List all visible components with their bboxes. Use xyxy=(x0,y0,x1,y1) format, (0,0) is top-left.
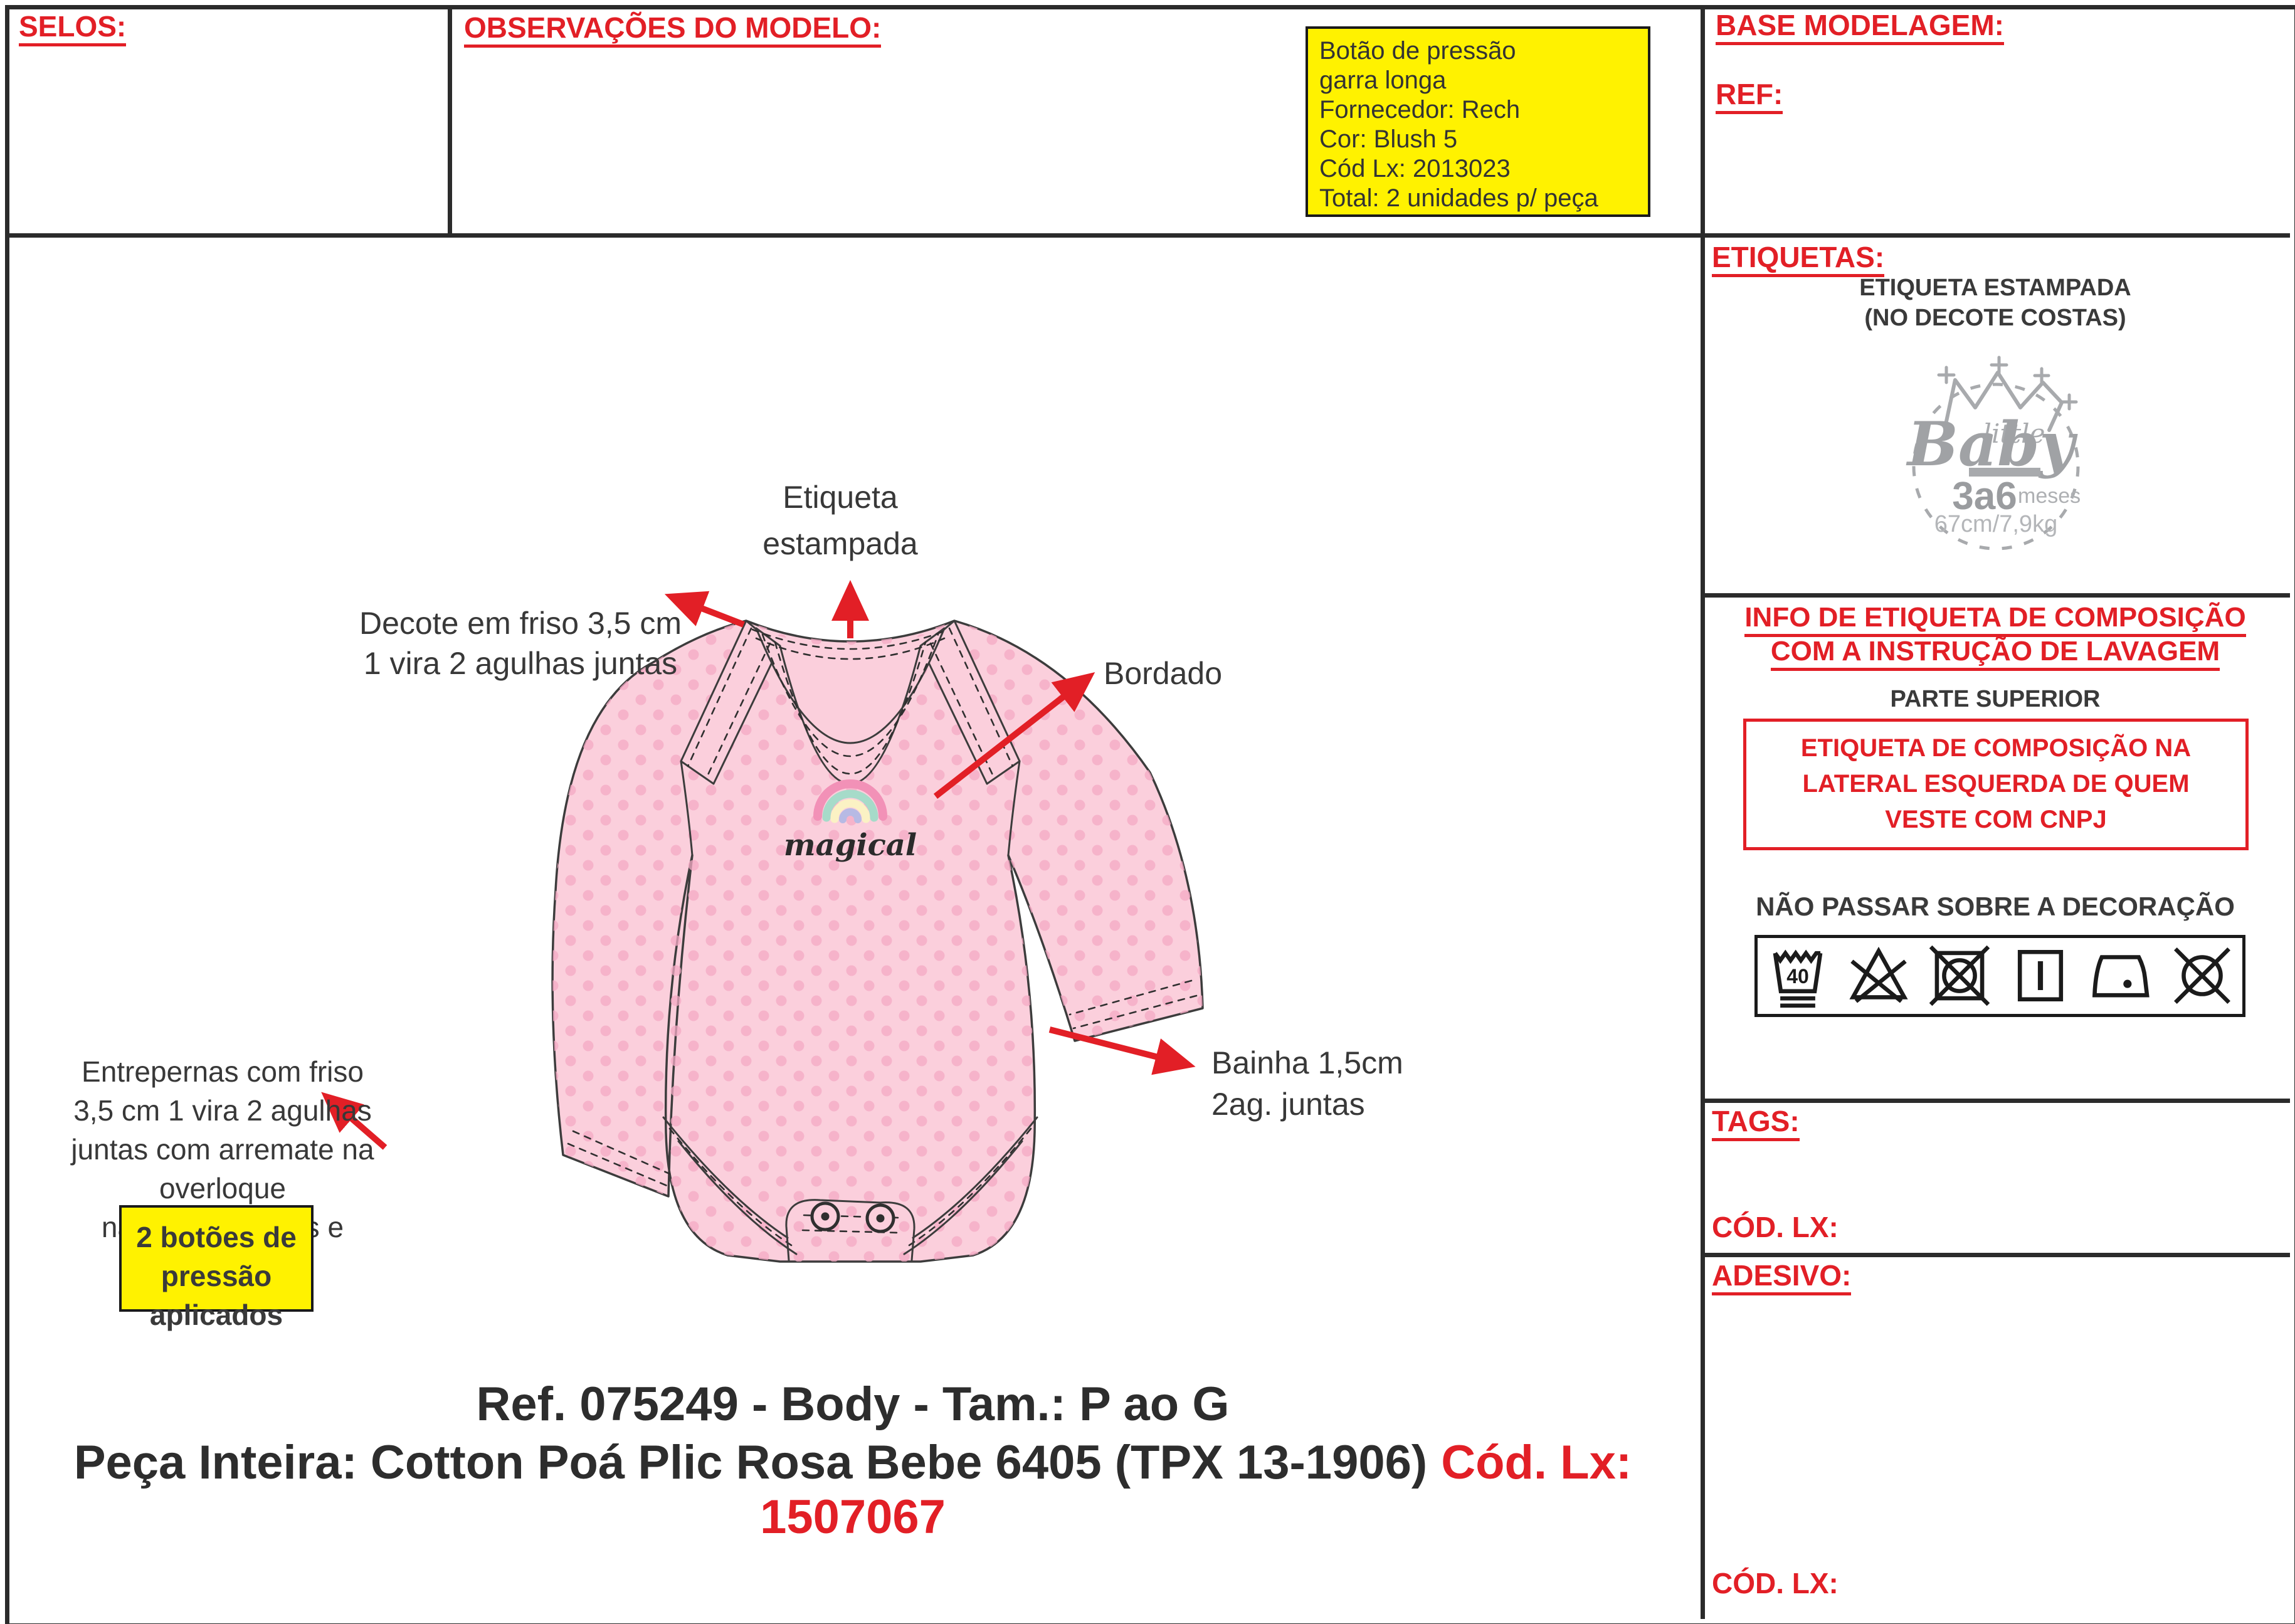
observacoes-title: OBSERVAÇÕES DO MODELO: xyxy=(464,13,881,48)
footer-title: Ref. 075249 - Body - Tam.: P ao G Peça I… xyxy=(5,1377,1701,1544)
bainha-line: Bainha 1,5cm xyxy=(1211,1042,1403,1084)
tech-pack-sheet: magical little Baby 3a6 meses 67 xyxy=(0,0,2295,1624)
tags-header: TAGS: xyxy=(1712,1106,1800,1141)
composicao-red-box: ETIQUETA DE COMPOSIÇÃO NA LATERAL ESQUER… xyxy=(1743,719,2249,850)
wash-temp-label: 40 xyxy=(1786,965,1809,988)
botoes-line: pressão aplicados xyxy=(122,1257,311,1334)
info-etiqueta-header: INFO DE ETIQUETA DE COMPOSIÇÃO COM A INS… xyxy=(1701,601,2290,668)
botoes-line: 2 botões de xyxy=(122,1218,311,1257)
snap-button-note: Botão de pressão garra longa Fornecedor:… xyxy=(1306,26,1650,217)
observacoes-header: OBSERVAÇÕES DO MODELO: xyxy=(464,13,881,48)
divider-top-band xyxy=(5,233,2290,238)
etiqueta-estampada-label: ETIQUETA ESTAMPADA xyxy=(1701,275,2290,302)
selos-header: SELOS: xyxy=(19,11,126,46)
divider-info-tags xyxy=(1701,1099,2290,1103)
divider-selos-obs xyxy=(448,5,452,238)
divider-etiquetas-info xyxy=(1701,593,2290,598)
care-symbols-box: 40 xyxy=(1754,935,2245,1017)
etiqueta-line: Etiqueta xyxy=(702,474,978,520)
composicao-line: ETIQUETA DE COMPOSIÇÃO NA xyxy=(1746,730,2245,766)
bainha-annotation: Bainha 1,5cm 2ag. juntas xyxy=(1211,1042,1403,1125)
info-title-line2: COM A INSTRUÇÃO DE LAVAGEM xyxy=(1771,636,2220,671)
divider-tags-adesivo xyxy=(1701,1253,2290,1257)
tags-cod-lx-label: CÓD. LX: xyxy=(1712,1210,1839,1244)
decote-line: 1 vira 2 agulhas juntas xyxy=(301,643,740,683)
etiqueta-estampada-annotation: Etiqueta estampada xyxy=(702,474,978,567)
adesivo-cod-lx-label: CÓD. LX: xyxy=(1712,1566,1839,1600)
ref-label: REF: xyxy=(1716,79,1783,114)
bordado-annotation: Bordado xyxy=(1104,653,1222,693)
footer-ref-line: Ref. 075249 - Body - Tam.: P ao G xyxy=(5,1377,1701,1432)
line-dry-icon xyxy=(2020,952,2061,999)
parte-superior-label: PARTE SUPERIOR xyxy=(1701,686,2290,713)
no-decote-costas-label: (NO DECOTE COSTAS) xyxy=(1701,305,2290,332)
etiquetas-header: ETIQUETAS: xyxy=(1712,242,1884,277)
no-tumble-dry-icon xyxy=(1931,947,1988,1004)
info-title-line1: INFO DE ETIQUETA DE COMPOSIÇÃO xyxy=(1744,602,2245,637)
decote-annotation: Decote em friso 3,5 cm 1 vira 2 agulhas … xyxy=(301,603,740,683)
note-line: Total: 2 unidades p/ peça xyxy=(1319,184,1637,213)
adesivo-title: ADESIVO: xyxy=(1712,1260,1851,1295)
decote-line: Decote em friso 3,5 cm xyxy=(301,603,740,643)
ref-header: REF: xyxy=(1716,79,1783,114)
footer-fabric-line: Peça Inteira: Cotton Poá Plic Rosa Bebe … xyxy=(5,1435,1701,1544)
selos-title: SELOS: xyxy=(19,11,126,46)
note-line: Cor: Blush 5 xyxy=(1319,125,1637,154)
entrepernas-line: 3,5 cm 1 vira 2 agulhas xyxy=(34,1091,411,1130)
nao-passar-label: NÃO PASSAR SOBRE A DECORAÇÃO xyxy=(1701,892,2290,922)
etiqueta-line: estampada xyxy=(702,520,978,567)
note-line: garra longa xyxy=(1319,66,1637,95)
composicao-line: LATERAL ESQUERDA DE QUEM xyxy=(1746,766,2245,802)
note-line: Botão de pressão xyxy=(1319,36,1637,66)
bainha-line: 2ag. juntas xyxy=(1211,1084,1403,1125)
footer-fabric-text: Peça Inteira: Cotton Poá Plic Rosa Bebe … xyxy=(74,1436,1427,1489)
composicao-line: VESTE COM CNPJ xyxy=(1746,802,2245,838)
tags-title: TAGS: xyxy=(1712,1106,1800,1141)
entrepernas-line: juntas com arremate na overloque xyxy=(34,1130,411,1208)
no-dry-clean-icon xyxy=(2175,949,2229,1002)
iron-low-icon xyxy=(2094,957,2147,995)
divider-main-right xyxy=(1701,5,1705,1619)
adesivo-header: ADESIVO: xyxy=(1712,1260,1851,1295)
base-modelagem-header: BASE MODELAGEM: xyxy=(1716,10,2004,45)
note-line: Cód Lx: 2013023 xyxy=(1319,154,1637,184)
base-modelagem-title: BASE MODELAGEM: xyxy=(1716,10,2004,45)
botoes-pressao-highlight: 2 botões de pressão aplicados xyxy=(119,1205,314,1312)
care-symbols: 40 xyxy=(1758,938,2242,1014)
no-bleach-icon xyxy=(1852,951,1905,1001)
etiquetas-title: ETIQUETAS: xyxy=(1712,242,1884,277)
entrepernas-line: Entrepernas com friso xyxy=(34,1052,411,1091)
note-line: Fornecedor: Rech xyxy=(1319,95,1637,125)
